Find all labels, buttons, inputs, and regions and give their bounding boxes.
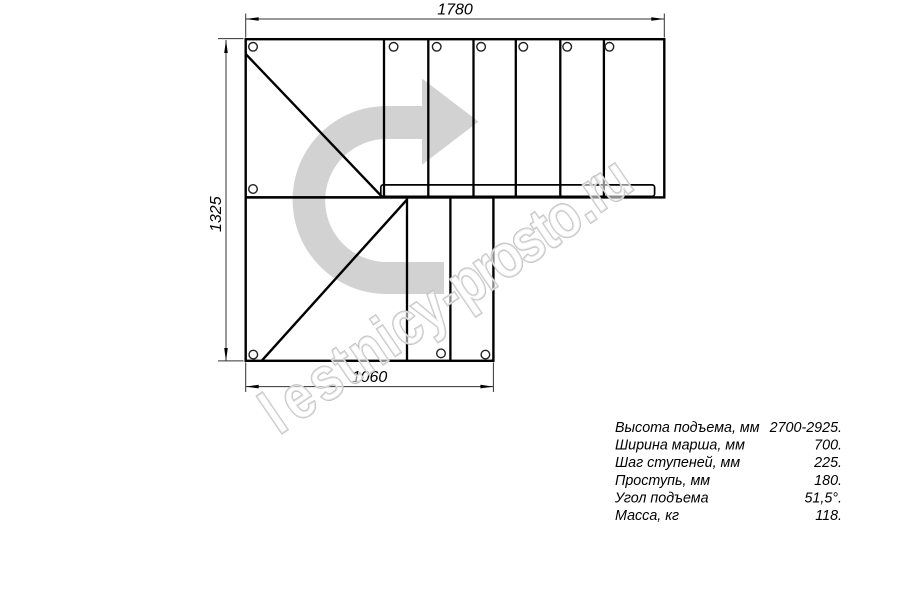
- svg-text:Масса, кг: Масса, кг: [615, 508, 679, 524]
- svg-text:Высота подъема, мм: Высота подъема, мм: [615, 420, 760, 436]
- svg-text:180.: 180.: [814, 473, 842, 489]
- svg-text:Проступь, мм: Проступь, мм: [615, 473, 710, 489]
- svg-text:51,5°.: 51,5°.: [804, 490, 842, 506]
- svg-text:Ширина марша, мм: Ширина марша, мм: [615, 438, 745, 454]
- svg-text:1780: 1780: [437, 2, 473, 19]
- svg-text:1325: 1325: [208, 196, 225, 232]
- svg-text:118.: 118.: [815, 508, 842, 524]
- svg-text:225.: 225.: [813, 455, 842, 471]
- svg-text:Угол подъема: Угол подъема: [614, 490, 709, 506]
- svg-text:Шаг ступеней, мм: Шаг ступеней, мм: [615, 455, 740, 471]
- svg-text:2700-2925.: 2700-2925.: [769, 420, 842, 436]
- svg-text:700.: 700.: [814, 438, 842, 454]
